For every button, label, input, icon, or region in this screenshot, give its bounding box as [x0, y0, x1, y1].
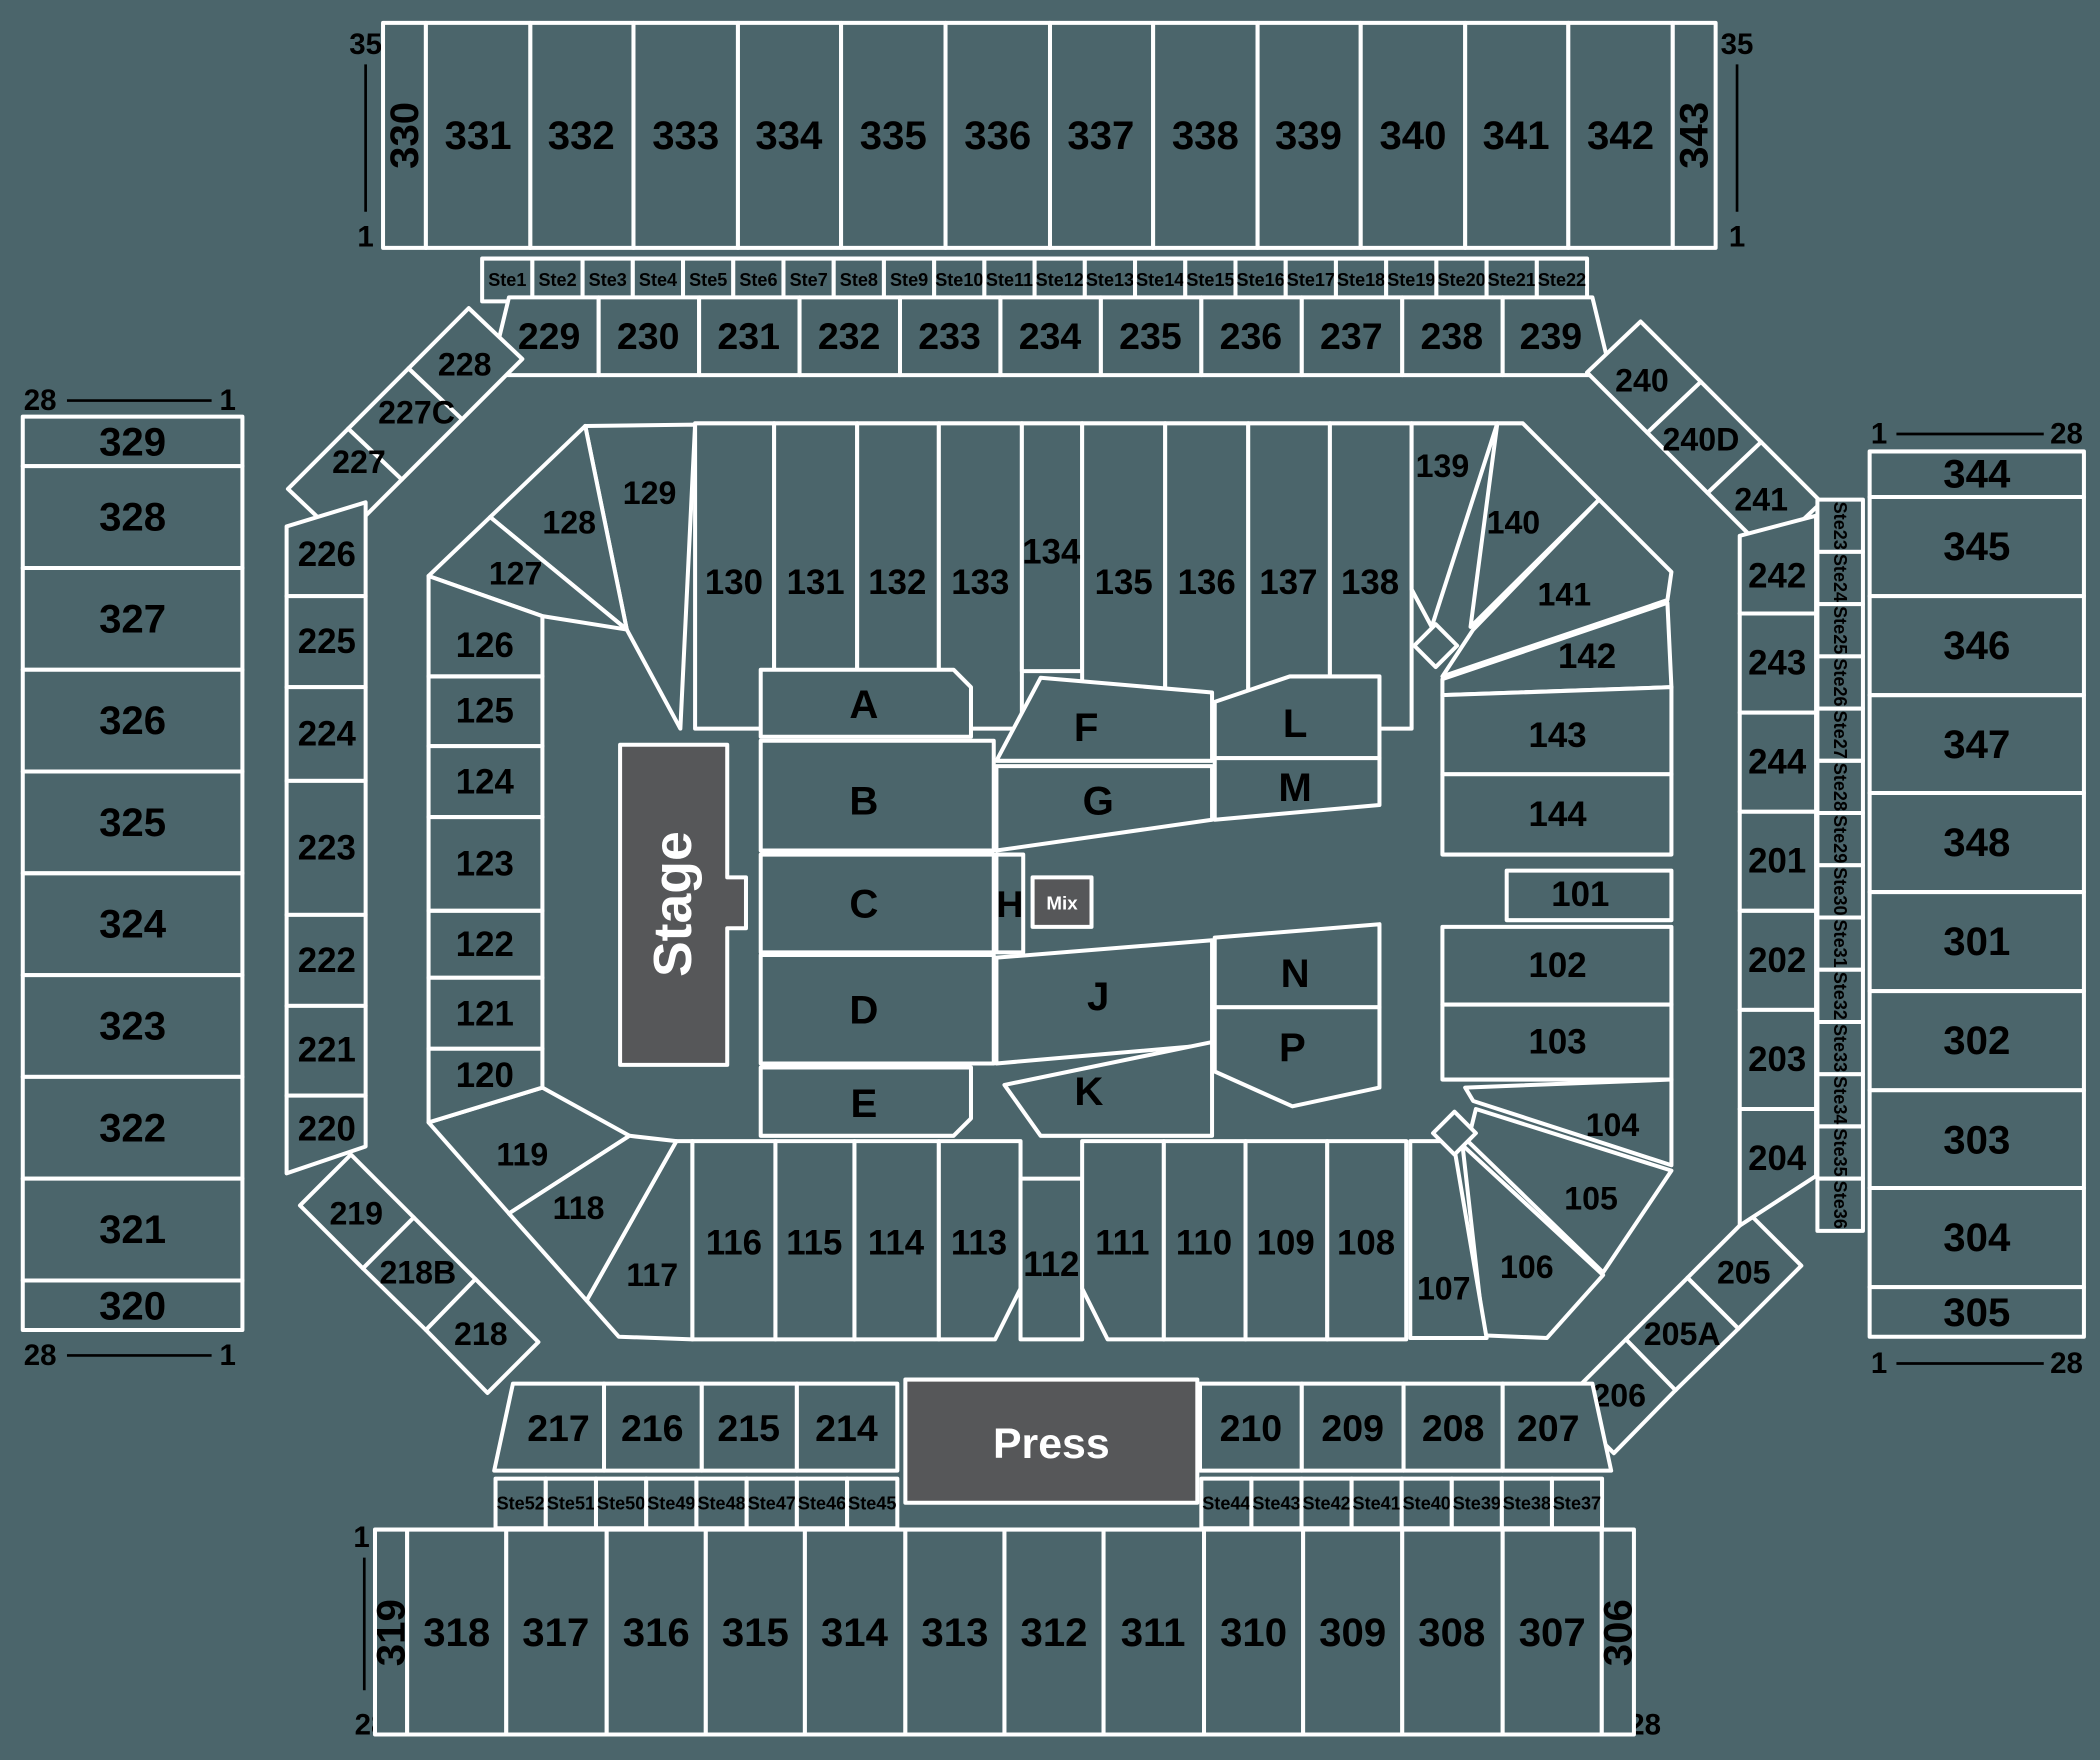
- section-315-label: 315: [722, 1610, 789, 1655]
- section-229-label: 229: [518, 315, 581, 357]
- section-221-label: 221: [298, 1031, 356, 1070]
- section-120-label: 120: [456, 1056, 514, 1095]
- section-341-label: 341: [1483, 113, 1550, 158]
- suite-ste8-label: Ste8: [840, 270, 878, 290]
- marker-1: 1: [1729, 221, 1745, 254]
- section-107-label: 107: [1417, 1270, 1471, 1306]
- section-233-label: 233: [918, 315, 981, 357]
- suite-ste48-label: Ste48: [697, 1493, 745, 1513]
- section-222-label: 222: [298, 941, 356, 980]
- section-140-label: 140: [1487, 504, 1541, 540]
- section-240D-label: 240D: [1662, 421, 1739, 457]
- section-203-label: 203: [1748, 1040, 1806, 1079]
- section-333-label: 333: [652, 113, 719, 158]
- section-232-label: 232: [818, 315, 881, 357]
- section-137-label: 137: [1259, 563, 1317, 602]
- section-317-label: 317: [522, 1610, 589, 1655]
- press-box-label: Press: [993, 1420, 1110, 1468]
- mix-booth-label: Mix: [1046, 892, 1078, 913]
- section-144-label: 144: [1529, 795, 1588, 834]
- stage-label: Stage: [644, 831, 703, 977]
- section-316-label: 316: [623, 1610, 690, 1655]
- section-310-label: 310: [1220, 1610, 1287, 1655]
- section-132-label: 132: [868, 563, 926, 602]
- section-338-label: 338: [1172, 113, 1239, 158]
- section-111-label: 111: [1095, 1223, 1149, 1262]
- floor-section-D-label: D: [849, 987, 878, 1032]
- section-242-label: 242: [1748, 556, 1806, 595]
- suite-ste42-label: Ste42: [1302, 1493, 1350, 1513]
- floor-section-N-label: N: [1281, 951, 1310, 996]
- suite-ste27-label: Ste27: [1830, 711, 1850, 759]
- section-311-label: 311: [1121, 1610, 1186, 1655]
- suite-ste24-label: Ste24: [1830, 554, 1850, 602]
- suite-ste30-label: Ste30: [1830, 867, 1850, 915]
- marker-28: 28: [24, 1339, 57, 1372]
- section-240-label: 240: [1615, 362, 1669, 398]
- section-234-label: 234: [1019, 315, 1082, 357]
- top-suites: Ste1 Ste2 Ste3 Ste4 Ste5 Ste6 Ste7 Ste8 …: [482, 259, 1587, 302]
- section-307-label: 307: [1519, 1610, 1586, 1655]
- suite-ste5-label: Ste5: [689, 270, 727, 290]
- floor-section-F[interactable]: [996, 678, 1212, 761]
- section-322-label: 322: [99, 1105, 166, 1150]
- section-227-label: 227: [332, 444, 386, 480]
- section-110-label: 110: [1176, 1223, 1232, 1262]
- section-109-label: 109: [1257, 1223, 1315, 1262]
- section-141-label: 141: [1537, 577, 1591, 613]
- section-336-label: 336: [964, 113, 1031, 158]
- section-121-label: 121: [456, 994, 514, 1033]
- section-320-label: 320: [99, 1283, 166, 1328]
- floor-section-F-label: F: [1074, 705, 1099, 750]
- section-321-label: 321: [99, 1207, 166, 1252]
- marker-1: 1: [357, 221, 373, 254]
- section-344-label: 344: [1943, 452, 2011, 497]
- section-335-label: 335: [860, 113, 927, 158]
- suite-ste39-label: Ste39: [1453, 1493, 1501, 1513]
- suite-ste16-label: Ste16: [1237, 270, 1285, 290]
- section-224-label: 224: [298, 715, 357, 754]
- suite-ste41-label: Ste41: [1353, 1493, 1401, 1513]
- section-218-label: 218: [454, 1316, 508, 1352]
- section-143-label: 143: [1529, 716, 1587, 755]
- floor-section-E-label: E: [850, 1081, 877, 1126]
- section-116-label: 116: [706, 1223, 762, 1262]
- floor-section-C-label: C: [849, 882, 878, 927]
- section-239-label: 239: [1520, 315, 1583, 357]
- floor-section-P-label: P: [1279, 1025, 1306, 1070]
- section-134-label: 134: [1022, 532, 1081, 571]
- marker-28: 28: [24, 384, 57, 417]
- suite-ste34-label: Ste34: [1830, 1076, 1850, 1124]
- suite-ste28-label: Ste28: [1830, 763, 1850, 811]
- section-302-label: 302: [1943, 1018, 2010, 1063]
- section-202-label: 202: [1748, 941, 1806, 980]
- section-118-label: 118: [553, 1190, 605, 1226]
- suite-ste43-label: Ste43: [1252, 1493, 1300, 1513]
- section-128-label: 128: [542, 504, 596, 540]
- suite-ste9-label: Ste9: [890, 270, 928, 290]
- section-346-label: 346: [1943, 623, 2010, 668]
- seating-map: 35 1 35 1 28 1 28 1 1 28 1 28 1 28 1 28 …: [0, 0, 2100, 1760]
- suite-ste1-label: Ste1: [488, 270, 526, 290]
- section-230-label: 230: [617, 315, 680, 357]
- floor-section-K-label: K: [1074, 1069, 1103, 1114]
- section-102-label: 102: [1529, 946, 1587, 985]
- suite-ste3-label: Ste3: [589, 270, 627, 290]
- section-204-label: 204: [1748, 1139, 1807, 1178]
- section-323-label: 323: [99, 1003, 166, 1048]
- section-126-label: 126: [456, 626, 514, 665]
- suite-ste33-label: Ste33: [1830, 1024, 1850, 1072]
- section-235-label: 235: [1119, 315, 1182, 357]
- floor-section-G-label: G: [1083, 778, 1114, 823]
- suite-ste47-label: Ste47: [748, 1493, 796, 1513]
- section-339-label: 339: [1275, 113, 1342, 158]
- section-244-label: 244: [1748, 743, 1807, 782]
- section-119-label: 119: [496, 1137, 548, 1173]
- section-236-label: 236: [1220, 315, 1283, 357]
- section-127-label: 127: [489, 555, 543, 591]
- section-115-label: 115: [786, 1223, 842, 1262]
- section-216-label: 216: [621, 1407, 684, 1449]
- section-214-label: 214: [815, 1407, 878, 1449]
- suite-ste12-label: Ste12: [1036, 270, 1084, 290]
- section-201-label: 201: [1748, 842, 1806, 881]
- section-104-label: 104: [1586, 1107, 1640, 1143]
- section-324-label: 324: [99, 902, 167, 947]
- section-327-label: 327: [99, 596, 166, 641]
- suite-ste18-label: Ste18: [1337, 270, 1385, 290]
- section-207-label: 207: [1517, 1407, 1580, 1449]
- suite-ste50-label: Ste50: [597, 1493, 645, 1513]
- section-123-label: 123: [456, 844, 514, 883]
- section-206-label: 206: [1592, 1378, 1646, 1414]
- suite-ste38-label: Ste38: [1503, 1493, 1551, 1513]
- suite-ste19-label: Ste19: [1387, 270, 1435, 290]
- section-135-label: 135: [1095, 563, 1153, 602]
- section-326-label: 326: [99, 698, 166, 743]
- suite-ste11-label: Ste11: [986, 270, 1033, 290]
- section-215-label: 215: [717, 1407, 780, 1449]
- suite-ste7-label: Ste7: [790, 270, 828, 290]
- floor-section-A-label: A: [849, 682, 878, 727]
- section-125-label: 125: [456, 692, 514, 731]
- floor-section-B-label: B: [849, 778, 878, 823]
- suite-ste21-label: Ste21: [1488, 270, 1536, 290]
- section-306-label: 306: [1595, 1599, 1640, 1666]
- section-113-label: 113: [951, 1223, 1007, 1262]
- suite-ste46-label: Ste46: [798, 1493, 846, 1513]
- section-117-label: 117: [626, 1257, 678, 1293]
- section-106-label: 106: [1500, 1249, 1554, 1285]
- section-347-label: 347: [1943, 722, 2010, 767]
- marker-28: 28: [2050, 1347, 2083, 1380]
- section-305-label: 305: [1943, 1290, 2010, 1335]
- section-328-label: 328: [99, 495, 166, 540]
- section-314-label: 314: [821, 1610, 889, 1655]
- section-217-label: 217: [527, 1407, 590, 1449]
- section-122-label: 122: [456, 925, 514, 964]
- suite-ste22-label: Ste22: [1538, 270, 1586, 290]
- section-313-label: 313: [921, 1610, 988, 1655]
- suite-ste2-label: Ste2: [538, 270, 576, 290]
- section-112-label: 112: [1023, 1245, 1079, 1284]
- section-340-label: 340: [1379, 113, 1446, 158]
- section-101-label: 101: [1551, 875, 1609, 914]
- section-226-label: 226: [298, 535, 356, 574]
- suite-ste14-label: Ste14: [1136, 270, 1184, 290]
- section-329-label: 329: [99, 420, 166, 465]
- section-225-label: 225: [298, 622, 356, 661]
- section-345-label: 345: [1943, 524, 2010, 569]
- section-228-label: 228: [438, 346, 492, 382]
- suite-ste20-label: Ste20: [1437, 270, 1485, 290]
- section-142-label: 142: [1558, 637, 1616, 676]
- section-332-label: 332: [548, 113, 615, 158]
- section-334-label: 334: [755, 113, 823, 158]
- suite-ste49-label: Ste49: [647, 1493, 695, 1513]
- section-114-label: 114: [868, 1223, 925, 1262]
- section-210-label: 210: [1220, 1407, 1283, 1449]
- suite-ste4-label: Ste4: [639, 270, 677, 290]
- section-124-label: 124: [456, 763, 515, 802]
- suite-ste35-label: Ste35: [1830, 1128, 1850, 1176]
- marker-35: 35: [349, 28, 382, 61]
- section-318-label: 318: [423, 1610, 490, 1655]
- marker-1: 1: [353, 1521, 369, 1554]
- section-237-label: 237: [1320, 315, 1383, 357]
- suite-ste52-label: Ste52: [497, 1493, 545, 1513]
- section-205A-label: 205A: [1644, 1316, 1721, 1352]
- floor-section-J-label: J: [1087, 974, 1109, 1019]
- section-208-label: 208: [1422, 1407, 1485, 1449]
- section-220-label: 220: [298, 1110, 356, 1149]
- section-130-label: 130: [705, 563, 763, 602]
- suite-ste13-label: Ste13: [1086, 270, 1134, 290]
- suite-ste25-label: Ste25: [1830, 606, 1850, 654]
- section-219-label: 219: [329, 1195, 383, 1231]
- section-337-label: 337: [1067, 113, 1134, 158]
- section-342-label: 342: [1587, 113, 1654, 158]
- marker-35: 35: [1721, 28, 1754, 61]
- section-131-label: 131: [787, 563, 845, 602]
- section-241-label: 241: [1734, 482, 1788, 518]
- section-304-label: 304: [1943, 1215, 2011, 1260]
- floor-section-H-label: H: [996, 883, 1023, 925]
- section-330-label: 330: [382, 102, 427, 169]
- floor-section-M-label: M: [1278, 765, 1311, 810]
- suite-ste36-label: Ste36: [1830, 1181, 1850, 1229]
- marker-1: 1: [1871, 1347, 1887, 1380]
- section-325-label: 325: [99, 800, 166, 845]
- section-343-label: 343: [1672, 102, 1717, 169]
- suite-ste31-label: Ste31: [1830, 919, 1850, 967]
- section-105-label: 105: [1564, 1181, 1618, 1217]
- section-227C-label: 227C: [378, 395, 455, 431]
- section-129-label: 129: [623, 475, 677, 511]
- right-suites: Ste23 Ste24 Ste25 Ste26 Ste27 Ste28 Ste2…: [1817, 500, 1863, 1231]
- suite-ste10-label: Ste10: [935, 270, 983, 290]
- floor-section-L-label: L: [1283, 701, 1308, 746]
- suite-ste40-label: Ste40: [1403, 1493, 1451, 1513]
- section-103-label: 103: [1529, 1023, 1587, 1062]
- suite-ste45-label: Ste45: [848, 1493, 896, 1513]
- suite-ste37-label: Ste37: [1553, 1493, 1601, 1513]
- section-331-label: 331: [445, 113, 512, 158]
- section-309-label: 309: [1319, 1610, 1386, 1655]
- section-133-label: 133: [951, 563, 1009, 602]
- marker-1: 1: [219, 384, 235, 417]
- suite-ste26-label: Ste26: [1830, 658, 1850, 706]
- section-138-label: 138: [1341, 563, 1399, 602]
- section-308-label: 308: [1418, 1610, 1485, 1655]
- suite-ste44-label: Ste44: [1202, 1493, 1250, 1513]
- section-139-label: 139: [1416, 448, 1470, 484]
- section-348-label: 348: [1943, 820, 2010, 865]
- suite-ste6-label: Ste6: [739, 270, 777, 290]
- section-108-label: 108: [1337, 1223, 1395, 1262]
- marker-1: 1: [219, 1339, 235, 1372]
- section-209-label: 209: [1321, 1407, 1384, 1449]
- suite-ste32-label: Ste32: [1830, 972, 1850, 1020]
- suite-ste23-label: Ste23: [1830, 502, 1850, 550]
- section-136-label: 136: [1178, 563, 1236, 602]
- marker-1: 1: [1871, 418, 1887, 451]
- marker-28: 28: [2050, 418, 2083, 451]
- section-223-label: 223: [298, 828, 356, 867]
- section-218B-label: 218B: [379, 1254, 456, 1290]
- section-238-label: 238: [1420, 315, 1483, 357]
- suite-ste51-label: Ste51: [547, 1493, 595, 1513]
- section-301-label: 301: [1943, 919, 2010, 964]
- section-243-label: 243: [1748, 644, 1806, 683]
- section-312-label: 312: [1021, 1610, 1088, 1655]
- suite-ste15-label: Ste15: [1186, 270, 1234, 290]
- section-303-label: 303: [1943, 1117, 2010, 1162]
- section-205-label: 205: [1717, 1254, 1771, 1290]
- section-231-label: 231: [717, 315, 780, 357]
- suite-ste17-label: Ste17: [1287, 270, 1335, 290]
- suite-ste29-label: Ste29: [1830, 815, 1850, 863]
